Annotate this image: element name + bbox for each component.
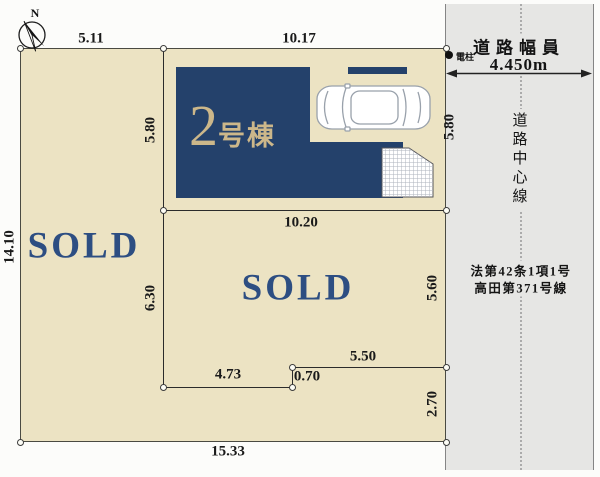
dim-building-bottom: 10.20 (284, 215, 318, 232)
compass-icon: N (10, 5, 56, 55)
dim-top-right: 10.17 (282, 31, 316, 48)
dim-left: 14.10 (2, 230, 19, 264)
building-suffix: 号棟 (218, 121, 276, 151)
dim-top-left: 5.11 (78, 31, 103, 48)
building-wall-segment (348, 67, 407, 74)
dim-building-left: 5.80 (143, 117, 160, 143)
dim-step-c: 5.50 (350, 349, 376, 366)
building-name: 2号棟 (189, 97, 276, 155)
road-centerline-label: 道路中心線 (509, 109, 530, 210)
car-icon (315, 83, 433, 132)
corner-marker (160, 45, 167, 52)
hatched-area-icon (381, 146, 434, 199)
building-number: 2 (189, 93, 218, 158)
dim-step-a: 4.73 (215, 367, 241, 384)
boundary-line-vertical (163, 49, 164, 387)
boundary-line-middle (163, 210, 446, 211)
dim-step-b: 0.70 (294, 369, 320, 386)
corner-marker (160, 207, 167, 214)
corner-marker (443, 439, 450, 446)
site-plan: 5.11 10.17 14.10 5.80 5.80 10.20 6.30 5.… (0, 0, 600, 477)
dim-building-right: 5.80 (442, 114, 459, 140)
dim-right-bottom: 2.70 (425, 391, 442, 417)
road-width-arrow (445, 67, 593, 80)
utility-pole-dot (445, 51, 453, 59)
corner-marker (443, 207, 450, 214)
dim-lower-right: 5.60 (425, 275, 442, 301)
utility-pole-label: 電柱 (456, 50, 474, 63)
corner-marker (160, 384, 167, 391)
dim-lower-left: 6.30 (143, 285, 160, 311)
dim-bottom: 15.33 (211, 444, 245, 461)
sold-label-lower: SOLD (242, 267, 355, 310)
corner-marker (443, 364, 450, 371)
road-law-line2: 高田第371号線 (473, 278, 568, 297)
compass-north-label: N (31, 6, 40, 20)
boundary-line-step-a (163, 387, 292, 388)
sold-label-left: SOLD (28, 225, 141, 268)
corner-marker (17, 439, 24, 446)
